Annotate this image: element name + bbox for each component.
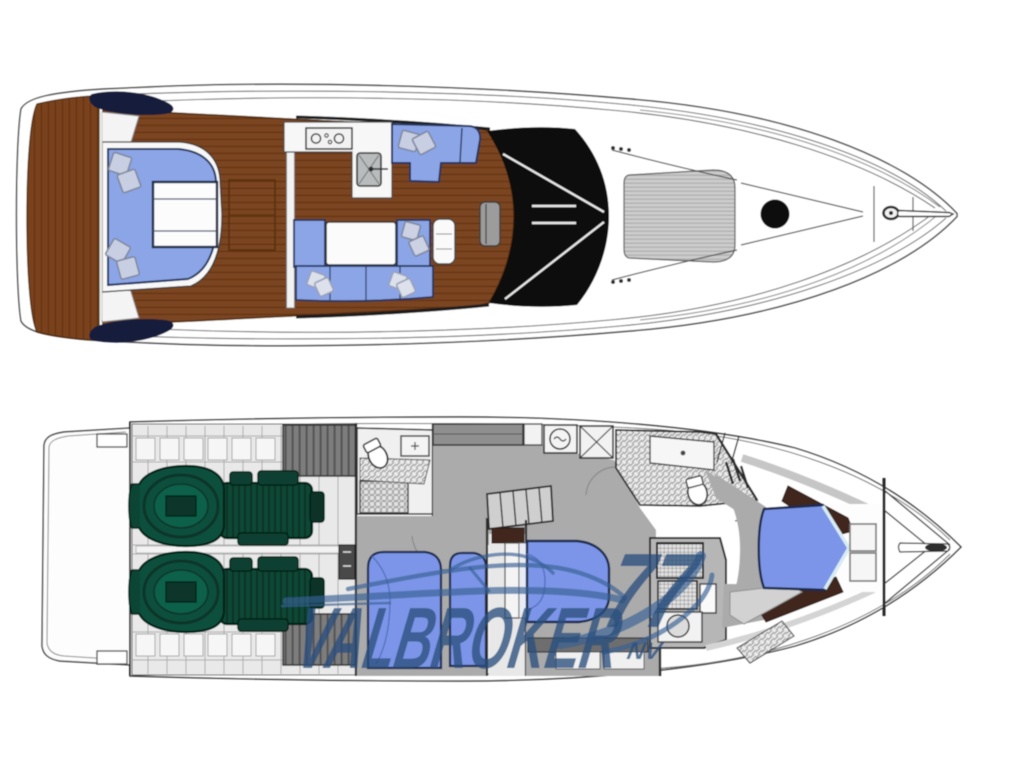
svg-text:VALBROKER: VALBROKER (290, 590, 629, 687)
